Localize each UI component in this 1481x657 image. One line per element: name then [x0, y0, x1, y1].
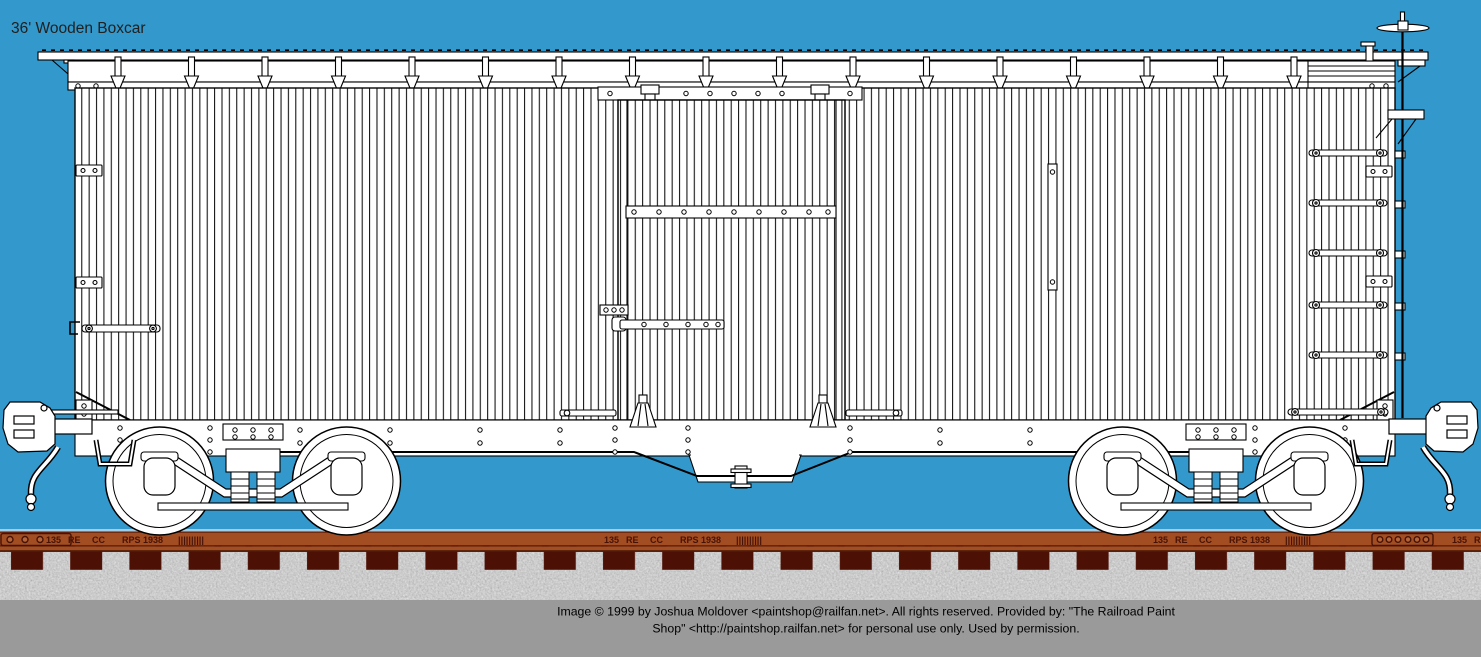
svg-text:135: 135: [1153, 535, 1168, 545]
copyright-line-1: Image © 1999 by Joshua Moldover <paintsh…: [557, 605, 1175, 619]
svg-text:RPS: RPS: [680, 535, 699, 545]
railroad-paint-shop-canvas: 36' Wooden Boxcar: [0, 0, 1481, 657]
svg-text:RE: RE: [1474, 535, 1481, 545]
footer: Image © 1999 by Joshua Moldover <paintsh…: [0, 600, 1481, 657]
door-batten: [626, 206, 836, 218]
svg-text:RPS: RPS: [1229, 535, 1248, 545]
track-ties: [0, 552, 1481, 570]
svg-text:RPS: RPS: [122, 535, 141, 545]
svg-text:||||||||||: ||||||||||: [736, 535, 762, 545]
svg-text:RE: RE: [68, 535, 81, 545]
svg-text:CC: CC: [650, 535, 663, 545]
bolt-plate: [76, 165, 102, 176]
svg-text:1938: 1938: [143, 535, 163, 545]
boxcar: [3, 12, 1478, 535]
svg-text:||||||||||: ||||||||||: [1285, 535, 1311, 545]
page-title: 36' Wooden Boxcar: [11, 20, 146, 37]
svg-text:1938: 1938: [701, 535, 721, 545]
railhead-shine: [0, 529, 1481, 532]
svg-text:135: 135: [604, 535, 619, 545]
svg-text:1938: 1938: [1250, 535, 1270, 545]
brake-step: [1388, 110, 1424, 119]
side-batten: [1048, 164, 1057, 290]
svg-text:CC: CC: [92, 535, 105, 545]
rail-marking-weight: 135: [46, 535, 61, 545]
svg-text:RE: RE: [1175, 535, 1188, 545]
svg-text:RE: RE: [626, 535, 639, 545]
rail: 135 RE CC RPS 1938 |||||||||| 135 RE CC …: [0, 529, 1481, 552]
svg-text:135: 135: [1452, 535, 1467, 545]
roof-vent-pipe: [1366, 45, 1373, 61]
copyright-line-2: Shop" <http://paintshop.railfan.net> for…: [652, 622, 1079, 636]
boxcar-illustration: 36' Wooden Boxcar: [0, 0, 1481, 657]
rail-hash-marks: ||||||||||: [178, 535, 204, 545]
svg-text:CC: CC: [1199, 535, 1212, 545]
